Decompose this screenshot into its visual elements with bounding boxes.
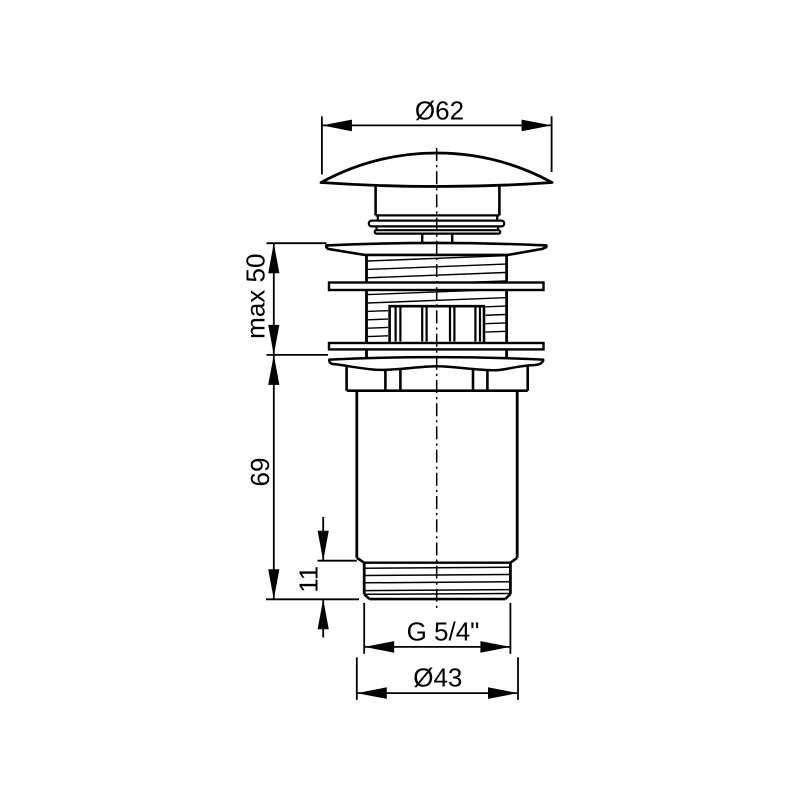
svg-text:Ø43: Ø43 <box>413 663 462 693</box>
svg-text:11: 11 <box>294 566 324 593</box>
svg-text:max 50: max 50 <box>240 254 270 339</box>
svg-text:69: 69 <box>245 458 275 487</box>
svg-text:G 5/4": G 5/4" <box>407 617 480 647</box>
svg-text:Ø62: Ø62 <box>415 96 464 126</box>
